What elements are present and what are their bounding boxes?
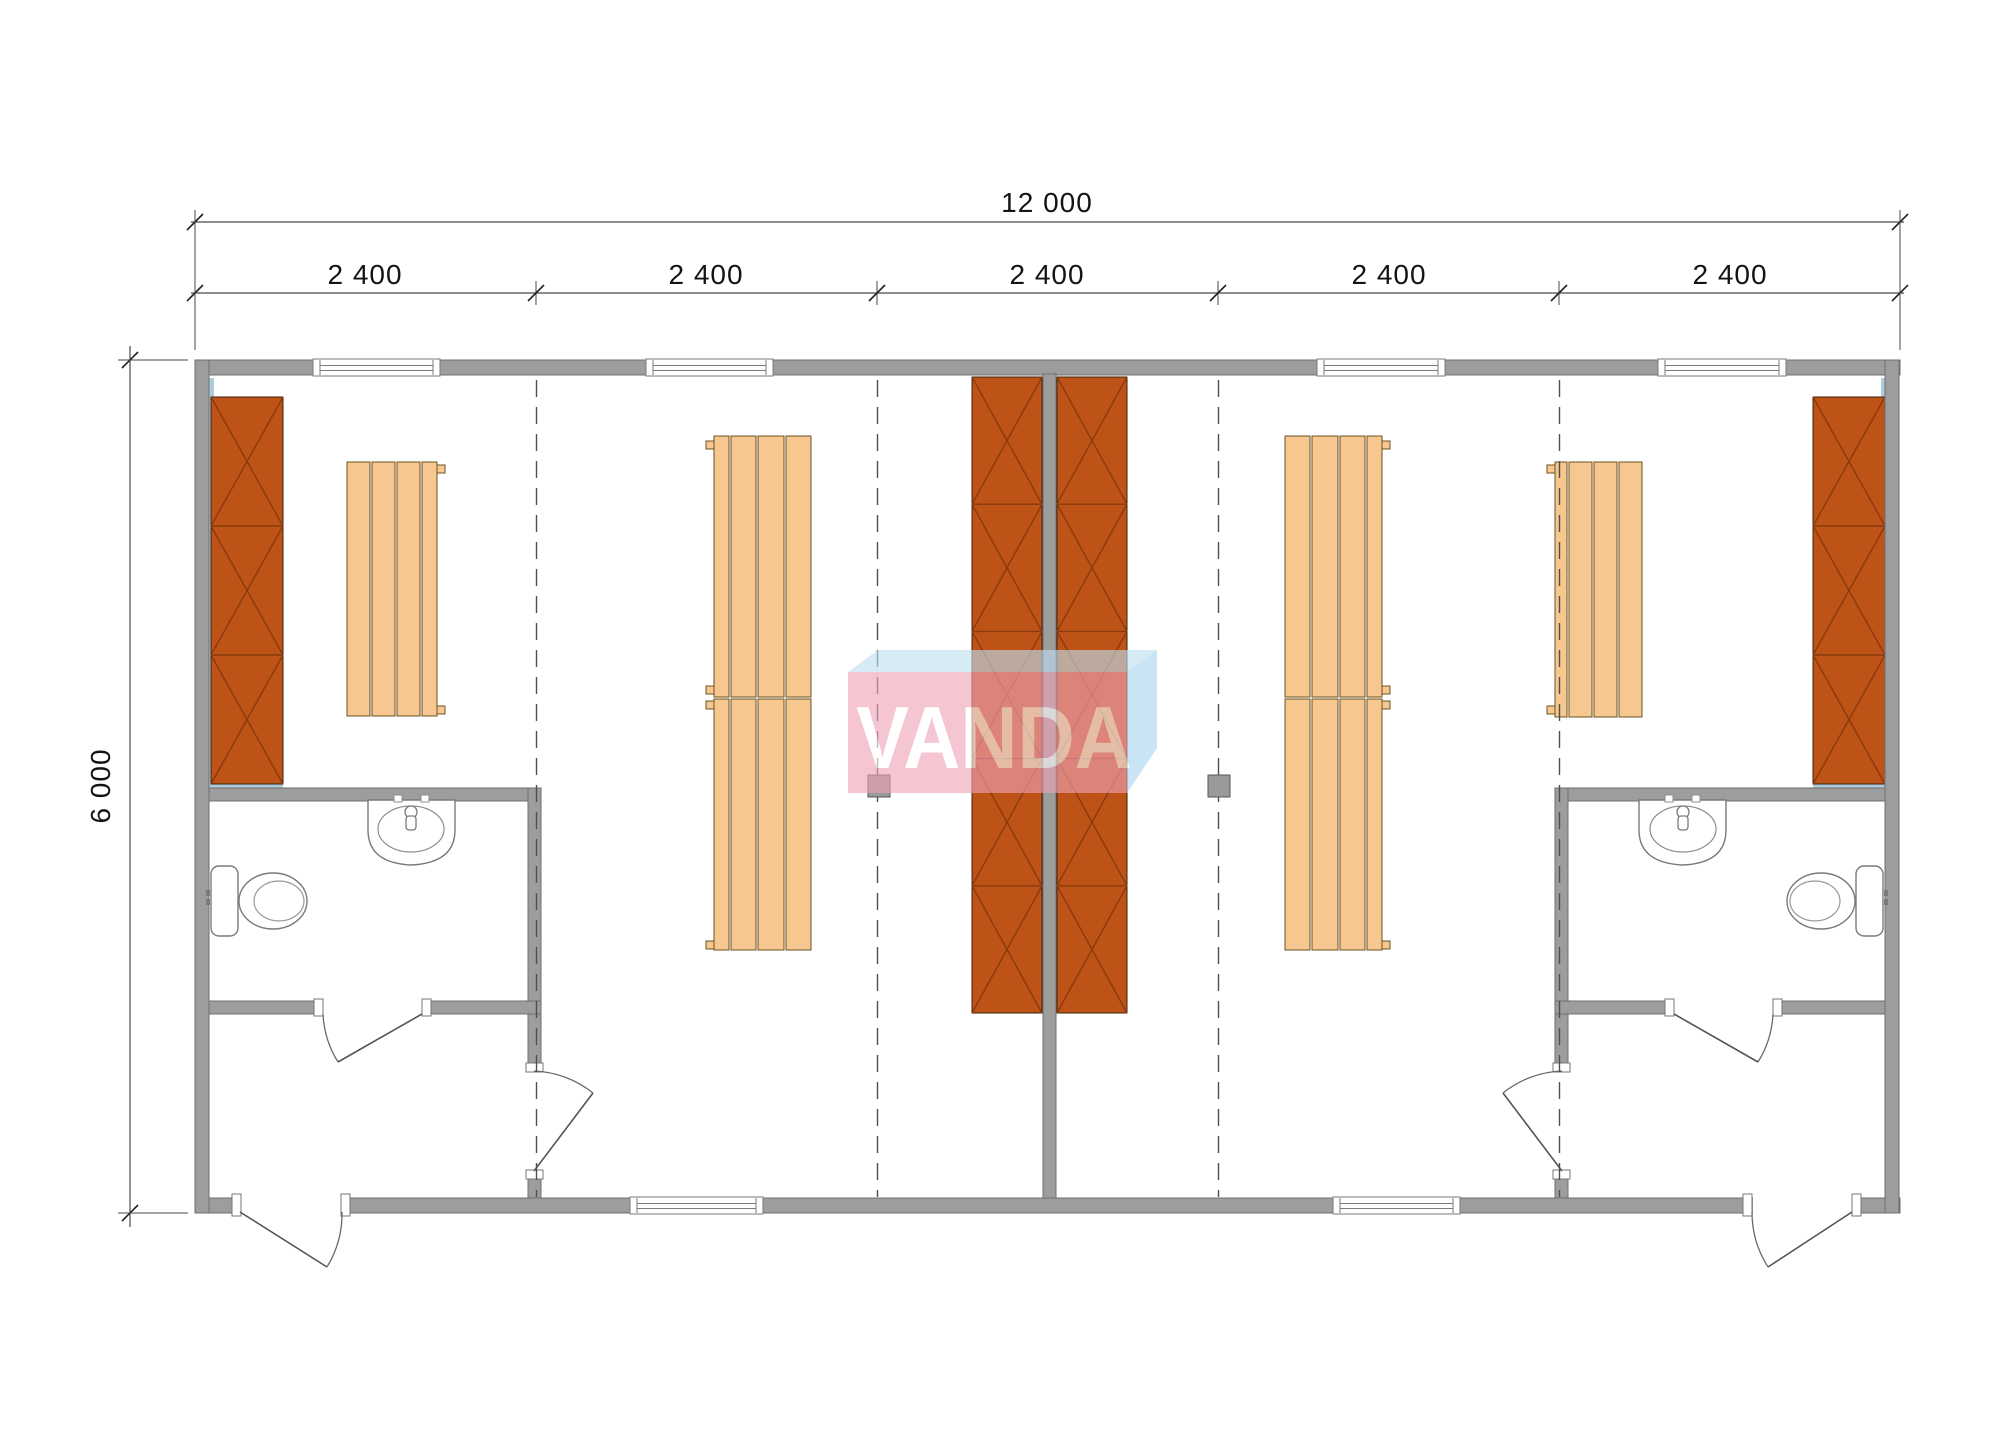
floor-plan: 12 000 6 000 2 4002 4002 4002 4002 400 V… [0,0,2000,1438]
dimension-label-bay: 2 400 [327,259,402,291]
bench-slat [714,699,729,950]
toilet-flush-icon [206,890,210,896]
bench-slat [422,462,437,716]
door-leaf [1768,1212,1852,1267]
bench-tab [1382,441,1390,449]
toilet-flush-icon [206,899,210,905]
window [1658,359,1786,376]
wall-segment [1555,788,1885,801]
door-jamb [1852,1194,1861,1216]
sink-tap-mount [421,795,429,802]
sink-faucet-icon [1678,816,1688,830]
door-leaf [1503,1093,1562,1171]
stove [1208,775,1230,797]
wall-segment [195,360,1900,375]
door-opening [1674,1000,1773,1015]
wall-segment [195,360,209,1213]
bench-slat [1340,699,1365,950]
stove [868,775,890,797]
door-opening [1554,1072,1569,1170]
bench-slat [1367,436,1382,697]
dimension-label-bay: 2 400 [1692,259,1767,291]
window [1317,359,1445,376]
bench-slat [1340,436,1365,697]
bench-slat [1619,462,1642,717]
door-swing-arc [323,1014,338,1062]
bench-tab [1382,701,1390,709]
door-leaf [1674,1014,1758,1062]
sink-tap-mount [1692,795,1700,802]
bench-slat [758,436,784,697]
bench-tab [706,686,714,694]
wall-segment [209,788,541,801]
bench-tab [437,465,445,473]
bench-slat [347,462,370,716]
toilet-tank [1856,866,1883,936]
toilet-tank [211,866,238,936]
door-jamb [1773,999,1782,1016]
door-opening [241,1196,341,1215]
wall-segment [1885,360,1899,1213]
bench-tab [706,941,714,949]
bench-slat [1312,436,1338,697]
door-leaf [534,1093,593,1171]
window [313,359,440,376]
dimension-label-bay: 2 400 [1009,259,1084,291]
bench-tab [1382,686,1390,694]
bench-slat [1569,462,1592,717]
bench-slat [1367,699,1382,950]
bench-tab [1382,941,1390,949]
door-leaf [240,1212,327,1267]
door-jamb [422,999,431,1016]
bench-slat [1285,699,1310,950]
bench-slat [786,699,811,950]
dimension-label-total-width: 12 000 [1001,187,1093,219]
door-jamb [314,999,323,1016]
door-swing-arc [327,1212,342,1267]
bench-tab [1547,465,1555,473]
bench-slat [372,462,395,716]
door-jamb [1743,1194,1752,1216]
door-swing-arc [1752,1212,1768,1267]
door-swing-arc [534,1071,593,1093]
door-opening [323,1000,422,1015]
door-leaf [338,1014,422,1062]
wall-segment [1043,374,1056,1198]
bench-slat [1312,699,1338,950]
dimension-label-bay: 2 400 [1351,259,1426,291]
bench-slat [714,436,729,697]
floor-plan-drawing [0,0,2000,1438]
bench-tab [706,701,714,709]
bench-tab [706,441,714,449]
window [646,359,773,376]
bench-slat [1594,462,1617,717]
bench-slat [731,436,756,697]
bench-slat [786,436,811,697]
dimension-label-total-height: 6 000 [85,748,117,823]
dimension-label-bay: 2 400 [668,259,743,291]
bench-slat [758,699,784,950]
sink-faucet-icon [406,816,416,830]
sink-tap-mount [394,795,402,802]
bench-slat [1555,462,1567,717]
bench-slat [397,462,420,716]
bench-tab [1547,706,1555,714]
sink-tap-mount [1665,795,1673,802]
toilet-flush-icon [1884,890,1888,896]
door-swing-arc [1758,1014,1773,1062]
door-opening [527,1072,542,1170]
bench-tab [437,706,445,714]
door-opening [1753,1196,1853,1215]
wall-segment [195,1198,1900,1213]
bench-slat [1285,436,1310,697]
window [1333,1197,1460,1214]
door-jamb [1665,999,1674,1016]
toilet-flush-icon [1884,899,1888,905]
window [630,1197,763,1214]
bench-slat [731,699,756,950]
door-swing-arc [1503,1071,1562,1093]
